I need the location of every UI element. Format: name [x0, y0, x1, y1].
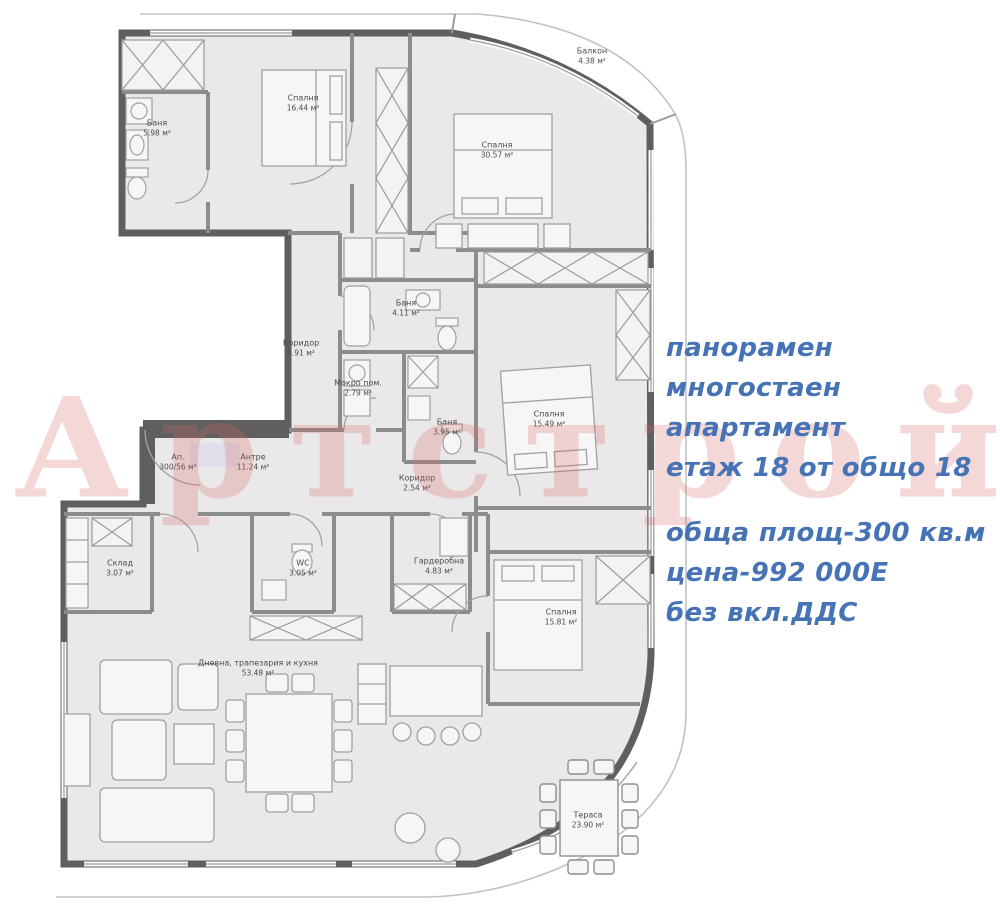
- pouf-icon: [436, 838, 460, 862]
- listing-text: панораменмногостаенапартаментетаж 18 от …: [666, 328, 998, 633]
- listing-line: етаж 18 от общо 18: [666, 448, 998, 488]
- listing-line: без вкл.ДДС: [666, 593, 998, 633]
- listing-line: обща площ-300 кв.м: [666, 513, 998, 553]
- listing-line: многостаен: [666, 368, 998, 408]
- listing-line: панорамен: [666, 328, 998, 368]
- bed-icon: [262, 70, 346, 166]
- listing-block-2: обща площ-300 кв.мцена-992 000Ебез вкл.Д…: [666, 513, 998, 633]
- bed-icon: [494, 560, 582, 670]
- listing-line: апартамент: [666, 408, 998, 448]
- label-highlight: [190, 443, 240, 467]
- pouf-icon: [395, 813, 425, 843]
- page: { "watermark": { "text": "Артстрой", "co…: [0, 0, 1000, 916]
- listing-line: цена-992 000Е: [666, 553, 998, 593]
- bed-icon: [436, 114, 570, 248]
- listing-block-1: панораменмногостаенапартаментетаж 18 от …: [666, 328, 998, 488]
- bed-icon: [500, 365, 597, 475]
